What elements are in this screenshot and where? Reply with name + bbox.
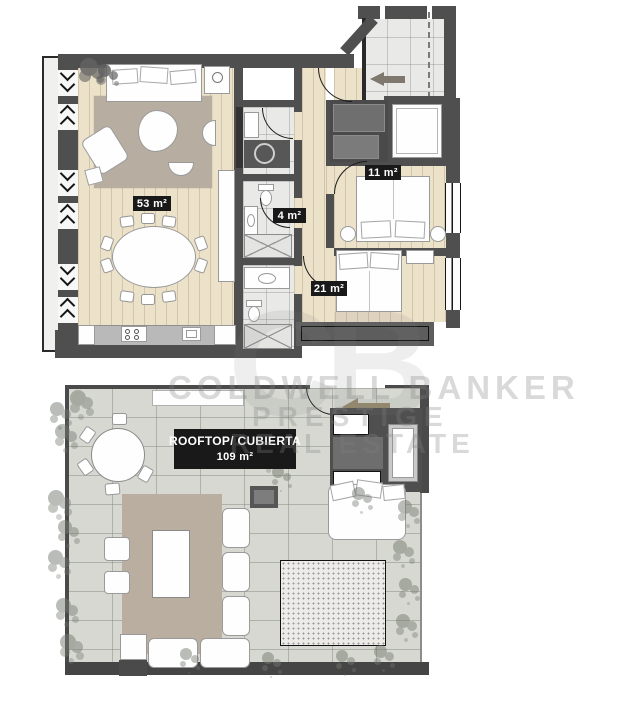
side-table xyxy=(204,66,230,94)
plant-icon xyxy=(80,58,98,76)
rooftop-chair xyxy=(105,482,121,495)
lobby-wall-gap xyxy=(380,6,385,19)
elevator-cab-inner xyxy=(396,108,438,154)
dining-chair xyxy=(119,290,134,303)
bath-divider xyxy=(234,258,302,265)
nightstand xyxy=(340,226,356,242)
plant-icon xyxy=(56,598,71,613)
sofa xyxy=(106,64,202,102)
storage-cabinet xyxy=(218,170,235,282)
plant-icon xyxy=(70,390,86,406)
wardrobe-unit xyxy=(333,135,379,159)
floor-plan-canvas: 53 m² 4 m² 11 m² 21 m² xyxy=(0,0,635,711)
plant-icon xyxy=(393,540,407,554)
bedroom-1-area-label: 11 m² xyxy=(365,165,401,180)
bath-door-gap xyxy=(294,112,302,140)
rooftop-sofa xyxy=(328,484,406,540)
utility-sink-icon xyxy=(244,112,259,138)
bed xyxy=(356,176,430,242)
plant-icon xyxy=(50,402,64,416)
rooftop-round-table xyxy=(91,428,145,482)
dining-chair xyxy=(141,294,155,305)
dining-chair xyxy=(141,213,155,224)
grill-icon xyxy=(250,486,278,508)
deck-cushion xyxy=(104,571,130,594)
bath-sink-icon xyxy=(244,206,258,236)
wardrobe-unit xyxy=(333,104,385,132)
bath-divider xyxy=(234,100,302,107)
dining-chair xyxy=(161,290,176,303)
deck-bench xyxy=(200,638,250,668)
plant-icon xyxy=(58,520,72,534)
plant-icon xyxy=(55,424,70,439)
plant-icon xyxy=(48,490,64,506)
cooktop-icon xyxy=(121,326,147,342)
plant-icon xyxy=(398,500,412,514)
rooftop-lawn-mat xyxy=(280,560,386,646)
entrance-arrow-icon xyxy=(370,72,384,86)
washing-machine-icon xyxy=(244,140,290,168)
kitchen-counter xyxy=(78,325,236,345)
deck-cushion xyxy=(222,552,250,592)
watermark-sub-line2: REAL ESTATE xyxy=(230,428,475,460)
shower-icon xyxy=(244,234,292,258)
plant-icon xyxy=(60,634,76,650)
rooftop-chair xyxy=(112,413,127,425)
kitchen-sink-icon xyxy=(182,327,201,341)
corner-wall xyxy=(55,330,78,358)
dining-table xyxy=(112,226,196,288)
deck-cushion xyxy=(222,596,250,636)
dining-chair xyxy=(161,215,176,228)
plant-icon xyxy=(48,550,63,565)
plant-icon xyxy=(262,652,274,664)
lobby-dashed-line xyxy=(428,12,430,98)
plant-icon xyxy=(352,487,365,500)
plant-icon xyxy=(98,64,111,77)
bedroom-2-door-gap xyxy=(302,248,334,256)
plant-icon xyxy=(374,645,387,658)
rooftop-right-line xyxy=(420,493,422,672)
tv-unit xyxy=(236,106,243,168)
living-room-area-label: 53 m² xyxy=(133,196,171,211)
deck-corner-seat xyxy=(120,634,147,660)
lobby-floor xyxy=(364,10,452,102)
entrance-arrow-shaft xyxy=(383,76,405,83)
bathroom-area-label: 4 m² xyxy=(273,208,306,223)
plant-icon xyxy=(336,650,348,662)
dining-chair xyxy=(119,215,134,228)
bedroom-1-window xyxy=(445,183,461,233)
bedroom-2-wardrobe xyxy=(406,250,434,264)
deck-planter xyxy=(119,660,147,676)
deck-table xyxy=(152,530,190,598)
kitchen-cabinet xyxy=(78,325,95,345)
bath-divider xyxy=(234,174,302,181)
nightstand xyxy=(430,226,446,242)
plant-icon xyxy=(180,648,192,660)
plant-icon xyxy=(399,578,412,591)
deck-cushion xyxy=(104,537,130,561)
lobby-right-wall xyxy=(444,6,456,104)
plant-icon xyxy=(396,614,410,628)
bedroom-2-window xyxy=(445,258,461,310)
deck-cushion xyxy=(222,508,250,548)
